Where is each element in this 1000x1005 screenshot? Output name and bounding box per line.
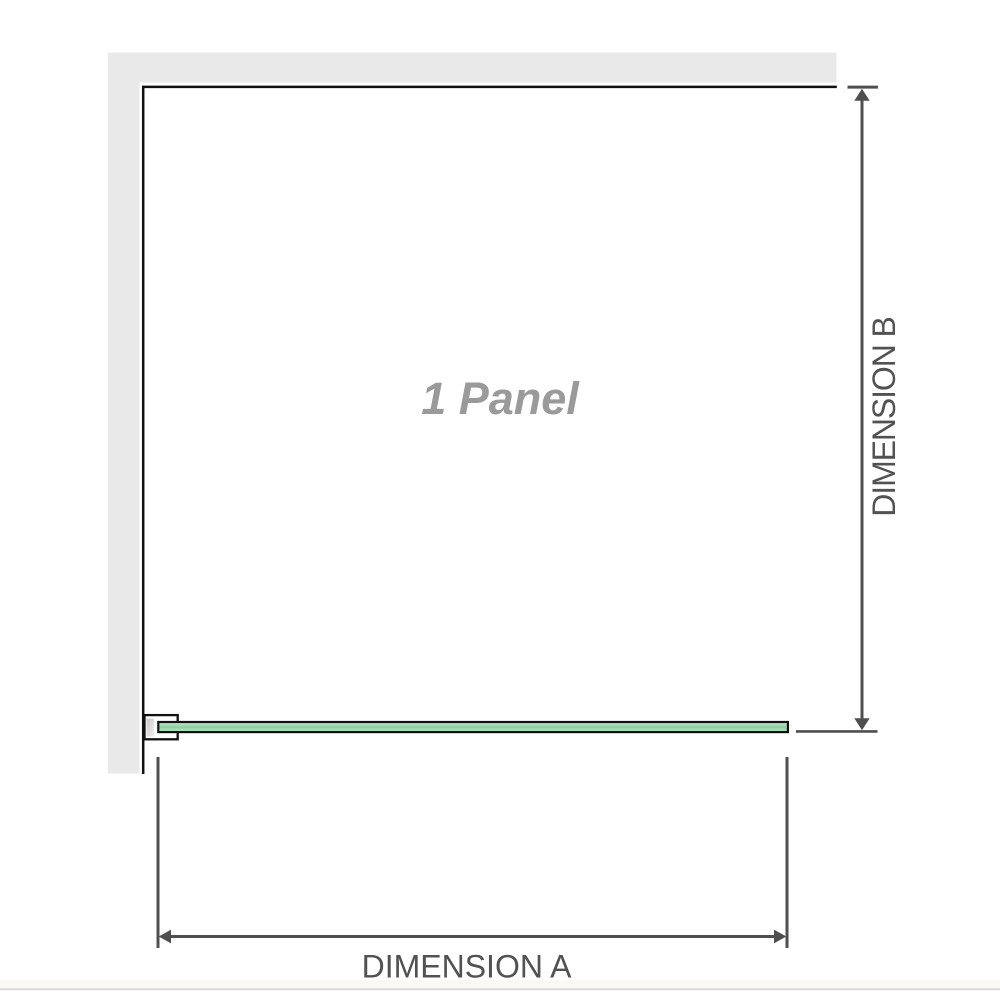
svg-text:DIMENSION A: DIMENSION A: [362, 949, 572, 985]
svg-text:1 Panel: 1 Panel: [421, 373, 580, 424]
svg-text:DIMENSION B: DIMENSION B: [866, 317, 902, 516]
